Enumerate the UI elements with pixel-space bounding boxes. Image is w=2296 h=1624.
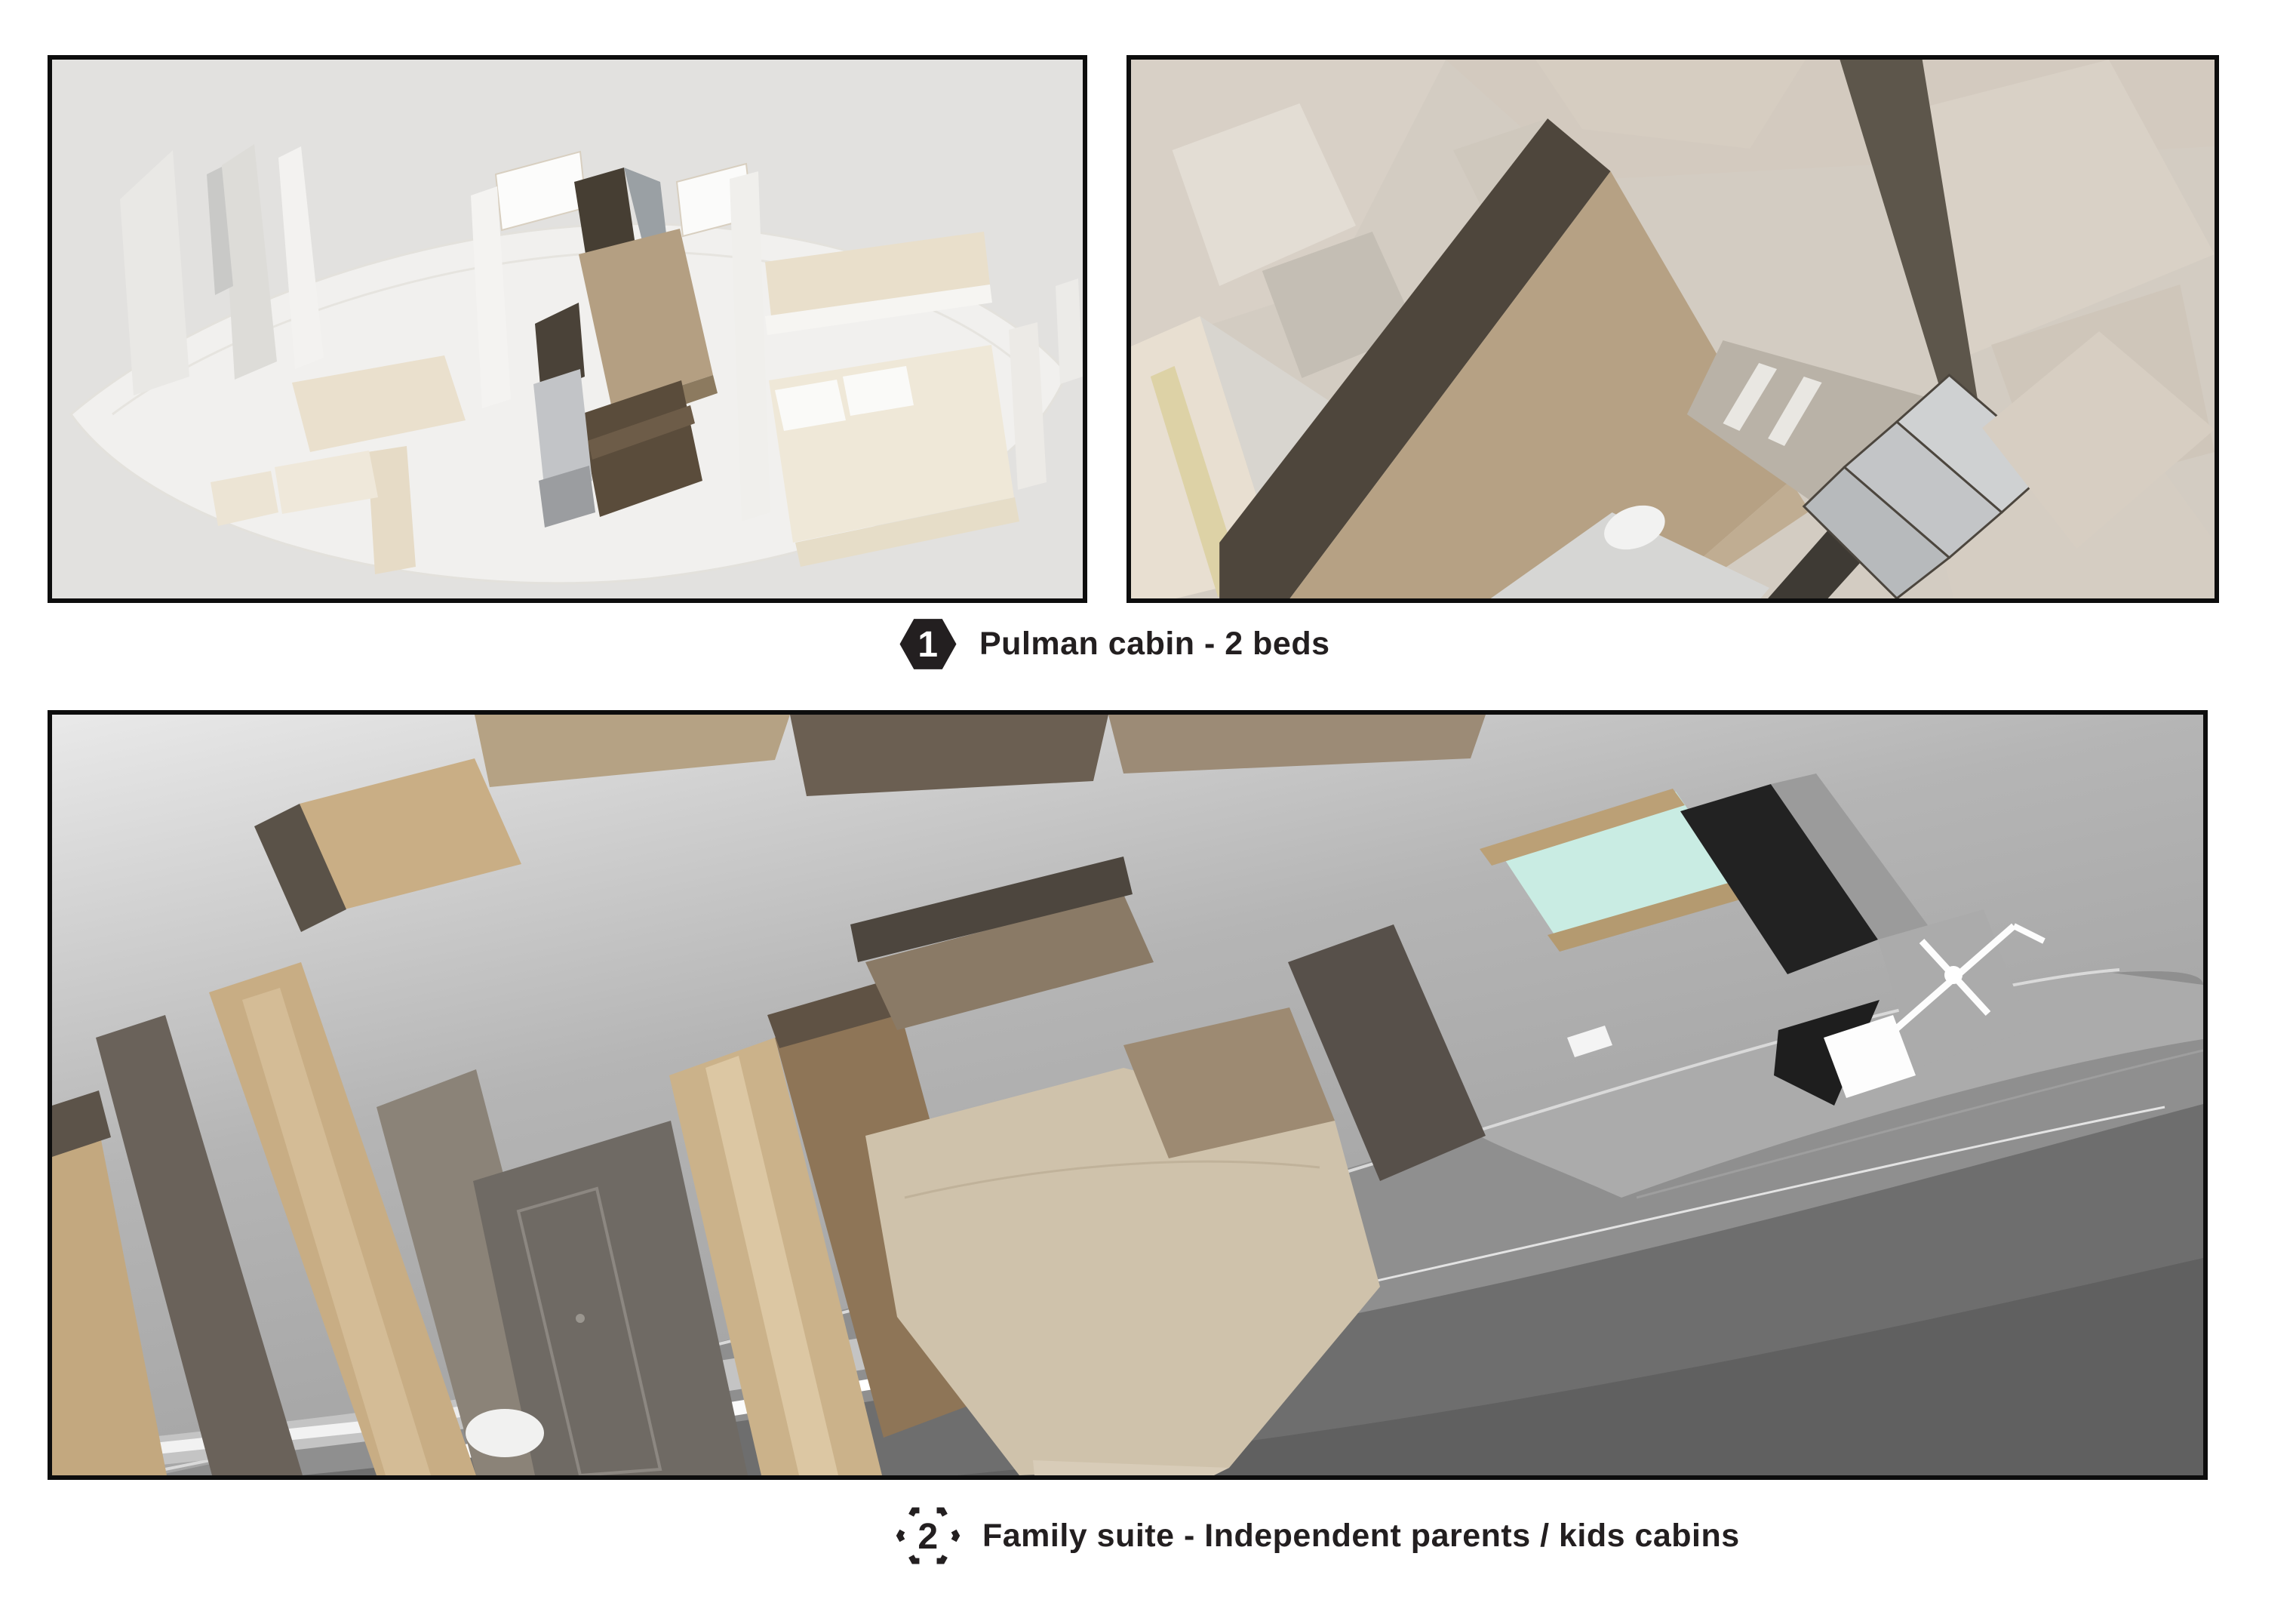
caption-family-suite: 2 Family suite - Independent parents / k… [895, 1503, 1740, 1568]
pulman-cabin-closeup-render [1131, 60, 2215, 598]
pulman-cabin-closeup-figure [1126, 55, 2219, 603]
dashed-hexagon-badge-2: 2 [895, 1504, 961, 1567]
family-suite-figure [48, 710, 2208, 1480]
caption-1-label: Pulman cabin - 2 beds [979, 626, 1330, 663]
toilet [466, 1409, 544, 1457]
family-suite-render [52, 715, 2203, 1475]
hexagon-badge-1: 1 [898, 616, 958, 672]
badge-number-2: 2 [917, 1516, 938, 1557]
caption-pulman-cabin: 1 Pulman cabin - 2 beds [898, 611, 1330, 676]
pulman-cabin-overview-figure [48, 55, 1087, 603]
caption-2-label: Family suite - Independent parents / kid… [982, 1518, 1740, 1555]
badge-number-1: 1 [917, 625, 938, 665]
pulman-cabin-overview-render [52, 60, 1083, 598]
